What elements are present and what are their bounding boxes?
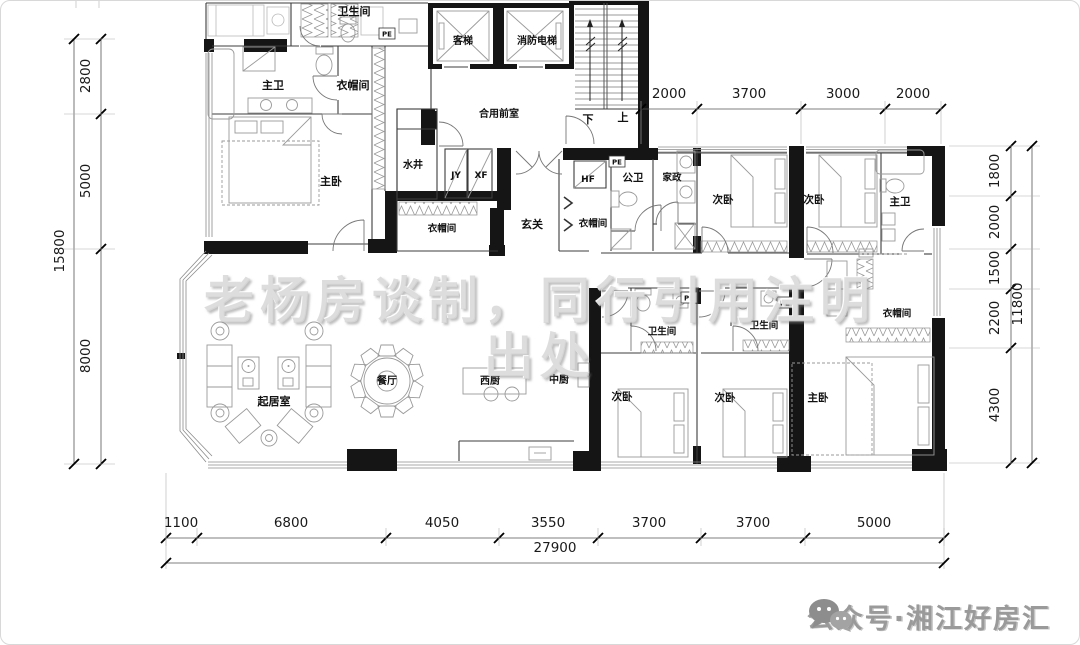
dim-bottom-6: 5000 bbox=[857, 515, 891, 531]
dim-right-1: 2000 bbox=[987, 205, 1003, 239]
room-label-dining-room: 餐厅 bbox=[376, 374, 397, 387]
master-bed-1-door bbox=[333, 220, 364, 251]
window-left bbox=[206, 53, 212, 237]
room-label-bedroom-2: 次卧 bbox=[713, 193, 734, 206]
entry-double-door bbox=[516, 151, 562, 174]
pouf-2 bbox=[305, 322, 323, 340]
corner-marks bbox=[76, 1, 99, 8]
tiny-label-shaft-xf: XF bbox=[474, 171, 487, 181]
room-label-foyer: 玄关 bbox=[521, 217, 543, 231]
windows bbox=[180, 53, 940, 468]
walls bbox=[177, 1, 947, 472]
tiny-label-pe-4: PE bbox=[780, 300, 790, 308]
dim-right-0: 1800 bbox=[987, 154, 1003, 188]
stove-1 bbox=[578, 363, 589, 374]
footer-logo: 公众号·湘江好房汇 bbox=[807, 597, 1051, 636]
tiny-label-shaft-jy: JY bbox=[450, 171, 461, 181]
bedroom-4-door bbox=[602, 291, 628, 317]
room-label-bedroom-3: 次卧 bbox=[804, 193, 825, 206]
pouf-1 bbox=[211, 322, 229, 340]
dim-right-4: 4300 bbox=[987, 388, 1003, 422]
toilet-3 bbox=[635, 289, 651, 295]
dim-left-1: 5000 bbox=[78, 164, 94, 198]
appliance bbox=[529, 447, 551, 460]
room-label-west-kitchen: 西厨 bbox=[480, 375, 500, 387]
armchair-2 bbox=[277, 409, 313, 444]
room-label-bedroom-5: 次卧 bbox=[715, 391, 736, 404]
dimensions-layer: 2800500080001580018002000150022004300118… bbox=[52, 34, 1040, 569]
bed-3 bbox=[819, 155, 877, 227]
room-label-master-bath-1: 主卫 bbox=[262, 78, 284, 92]
sink-top bbox=[399, 19, 417, 33]
staircase bbox=[575, 3, 638, 109]
room-label-living-room: 起居室 bbox=[257, 394, 291, 408]
dim-right-2: 1500 bbox=[987, 251, 1003, 285]
room-label-bath-mid-2: 卫生间 bbox=[750, 320, 779, 332]
room-label-elevator-passenger: 客梯 bbox=[452, 34, 473, 47]
room-label-bath-mid-1: 卫生间 bbox=[648, 326, 677, 338]
dim-left-0: 2800 bbox=[78, 59, 94, 93]
dim-right-3: 2200 bbox=[987, 301, 1003, 335]
water-well-door bbox=[439, 122, 463, 146]
dim-left-total: 15800 bbox=[52, 230, 68, 273]
rug-1 bbox=[222, 141, 319, 205]
bed-master-2 bbox=[846, 357, 934, 455]
dim-top-1: 3700 bbox=[732, 86, 766, 102]
dim-bottom-4: 3700 bbox=[632, 515, 666, 531]
room-label-closet-4: 衣帽间 bbox=[883, 308, 912, 320]
room-label-stair-down: 下 bbox=[583, 113, 594, 126]
toilet-1 bbox=[316, 47, 333, 54]
room-label-housekeeping: 家政 bbox=[662, 172, 682, 184]
armchair-1 bbox=[225, 409, 261, 444]
dim-top-0: 2000 bbox=[652, 86, 686, 102]
dim-bottom-3: 3550 bbox=[531, 515, 565, 531]
tiny-label-pe-3: PE bbox=[684, 295, 694, 303]
room-label-master-bed-2: 主卧 bbox=[808, 391, 829, 404]
room-label-closet-3: 衣帽间 bbox=[579, 218, 608, 230]
wechat-bubbles-icon bbox=[807, 597, 855, 633]
room-label-closet-1: 衣帽间 bbox=[337, 78, 370, 92]
dim-bottom-total: 27900 bbox=[534, 540, 577, 556]
window-right bbox=[934, 228, 940, 316]
dim-bottom-2: 4050 bbox=[425, 515, 459, 531]
master-bath-1-door bbox=[313, 76, 337, 100]
floor-plan-image: 卫生间主卫衣帽间主卧水井客梯消防电梯合用前室下上玄关衣帽间衣帽间公卫家政次卧次卧… bbox=[0, 0, 1080, 645]
room-label-master-bath-2: 主卫 bbox=[890, 195, 911, 208]
pouf-5 bbox=[261, 430, 277, 446]
master-bath-2-door bbox=[902, 229, 924, 251]
vanity-1 bbox=[248, 98, 312, 113]
dim-bottom-0: 1100 bbox=[164, 515, 198, 531]
dim-right-total: 11800 bbox=[1010, 283, 1026, 326]
dim-bottom-1: 6800 bbox=[274, 515, 308, 531]
dim-left-2: 8000 bbox=[78, 339, 94, 373]
room-label-bedroom-4: 次卧 bbox=[612, 390, 633, 403]
master-suite-door bbox=[804, 259, 832, 287]
tiny-label-shaft-hf: HF bbox=[581, 175, 595, 185]
tiny-label-pe-2: PE bbox=[612, 159, 622, 167]
hanger-chevrons bbox=[564, 197, 572, 231]
room-label-shared-lobby: 合用前室 bbox=[478, 107, 519, 120]
dim-bottom-5: 3700 bbox=[736, 515, 770, 531]
sofa-2 bbox=[306, 345, 331, 407]
tiny-label-pe-1: PE bbox=[382, 31, 392, 39]
side-table-1 bbox=[238, 357, 259, 389]
room-labels-layer: 卫生间主卫衣帽间主卧水井客梯消防电梯合用前室下上玄关衣帽间衣帽间公卫家政次卧次卧… bbox=[257, 4, 912, 408]
room-label-master-bed-1: 主卧 bbox=[320, 174, 342, 188]
dim-top-3: 2000 bbox=[896, 86, 930, 102]
side-table-2 bbox=[278, 357, 299, 389]
sofa-1 bbox=[207, 345, 232, 407]
toilet-pub bbox=[611, 191, 619, 207]
room-label-water-well: 水井 bbox=[402, 158, 423, 171]
room-label-public-bath: 公卫 bbox=[623, 172, 644, 184]
bedroom-5-door bbox=[699, 291, 725, 317]
room-label-elevator-fire: 消防电梯 bbox=[517, 34, 557, 47]
dim-top-2: 3000 bbox=[826, 86, 860, 102]
room-label-stair-up: 上 bbox=[618, 110, 629, 124]
stove-2 bbox=[578, 376, 589, 387]
closet-1-door bbox=[322, 114, 342, 134]
room-label-chinese-kitchen: 中厨 bbox=[549, 373, 569, 386]
room-label-closet-2: 衣帽间 bbox=[428, 223, 457, 235]
room-label-bath-top: 卫生间 bbox=[338, 4, 371, 18]
floor-plan-drawing: 卫生间主卫衣帽间主卧水井客梯消防电梯合用前室下上玄关衣帽间衣帽间公卫家政次卧次卧… bbox=[1, 1, 1079, 644]
bed-2 bbox=[731, 155, 787, 227]
